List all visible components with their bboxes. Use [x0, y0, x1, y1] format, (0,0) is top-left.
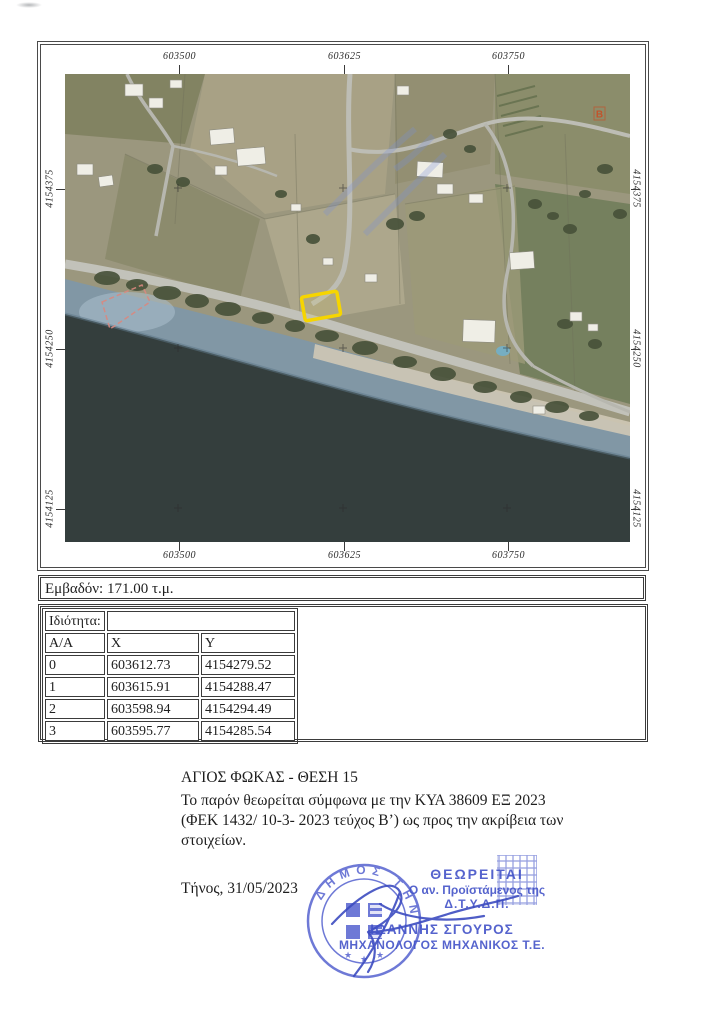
property-row: Ιδιότητα: — [45, 611, 295, 631]
property-label: Ιδιότητα: — [45, 611, 105, 631]
grid-label-top-3: 603750 — [492, 51, 525, 62]
cell-y: 4154279.52 — [201, 655, 295, 675]
col-header-y: Y — [201, 633, 295, 653]
coordinate-table: Ιδιότητα: Α/Α X Y 0 603612.73 4154279.52… — [42, 608, 298, 744]
cell-id: 3 — [45, 721, 105, 741]
parcel-outline — [301, 291, 341, 321]
table-row: 0 603612.73 4154279.52 — [45, 655, 295, 675]
approval-role-1: Ο αν. Προϊστάμενος της — [372, 883, 582, 897]
grid-tick — [179, 65, 180, 74]
cell-y: 4154285.54 — [201, 721, 295, 741]
grid-label-left-3: 4154125 — [45, 486, 56, 532]
scan-artifact — [16, 2, 42, 8]
grid-tick — [631, 349, 640, 350]
col-header-aa: Α/Α — [45, 633, 105, 653]
grid-label-top-1: 603500 — [163, 51, 196, 62]
grid-label-bottom-1: 603500 — [163, 550, 196, 561]
grid-label-bottom-3: 603750 — [492, 550, 525, 561]
grid-tick — [344, 542, 345, 551]
approval-word: ΘΕΩΡΕΙΤΑΙ — [372, 866, 582, 882]
approval-role-2: Δ.Τ.Υ.Δ.Π. — [372, 897, 582, 911]
cell-y: 4154294.49 — [201, 699, 295, 719]
table-row: 2 603598.94 4154294.49 — [45, 699, 295, 719]
location-title: ΑΓΙΟΣ ΦΩΚΑΣ - ΘΕΣΗ 15 — [181, 768, 611, 788]
grid-label-left-2: 4154250 — [45, 326, 56, 372]
cell-x: 603612.73 — [107, 655, 199, 675]
cell-id: 0 — [45, 655, 105, 675]
col-header-x: X — [107, 633, 199, 653]
area-label: Εμβαδόν: 171.00 τ.μ. — [45, 581, 174, 597]
aerial-map-canvas: B — [65, 74, 630, 542]
grid-tick — [631, 189, 640, 190]
signer-name: ΙΩΑΝΝΗΣ ΣΓΟΥΡΟΣ — [322, 922, 562, 937]
grid-label-top-2: 603625 — [328, 51, 361, 62]
header-row: Α/Α X Y — [45, 633, 295, 653]
legal-line-2: (ΦΕΚ 1432/ 10-3- 2023 τεύχος Β’) ως προς… — [181, 811, 611, 831]
table-row: 1 603615.91 4154288.47 — [45, 677, 295, 697]
cell-id: 2 — [45, 699, 105, 719]
table-row: 3 603595.77 4154285.54 — [45, 721, 295, 741]
grid-tick — [56, 349, 65, 350]
coordinate-table-box: Ιδιότητα: Α/Α X Y 0 603612.73 4154279.52… — [40, 606, 646, 740]
approval-stamp: ΘΕΩΡΕΙΤΑΙ Ο αν. Προϊστάμενος της Δ.Τ.Υ.Δ… — [372, 866, 582, 911]
property-value — [107, 611, 295, 631]
grid-tick — [56, 509, 65, 510]
map-frame: 603500 603625 603750 603500 603625 60375… — [40, 44, 646, 568]
cell-y: 4154288.47 — [201, 677, 295, 697]
grid-tick — [508, 542, 509, 551]
cell-x: 603598.94 — [107, 699, 199, 719]
cell-x: 603595.77 — [107, 721, 199, 741]
cell-x: 603615.91 — [107, 677, 199, 697]
grid-label-bottom-2: 603625 — [328, 550, 361, 561]
grid-tick — [179, 542, 180, 551]
aerial-map: B — [65, 74, 630, 542]
grid-tick — [344, 65, 345, 74]
svg-text:★: ★ — [360, 954, 368, 964]
grid-tick — [631, 509, 640, 510]
area-bar: Εμβαδόν: 171.00 τ.μ. — [40, 577, 644, 599]
grid-label-left-1: 4154375 — [45, 166, 56, 212]
seal-stars: ★★★ — [344, 950, 384, 964]
signer-title: ΜΗΧΑΝΟΛΟΓΟΣ ΜΗΧΑΝΙΚΟΣ Τ.Ε. — [322, 938, 562, 952]
signer-block: ΙΩΑΝΝΗΣ ΣΓΟΥΡΟΣ ΜΗΧΑΝΟΛΟΓΟΣ ΜΗΧΑΝΙΚΟΣ Τ.… — [322, 922, 562, 952]
svg-text:B: B — [596, 110, 603, 121]
grid-tick — [56, 189, 65, 190]
cell-id: 1 — [45, 677, 105, 697]
grid-tick — [508, 65, 509, 74]
legal-line-1: Το παρόν θεωρείται σύμφωνα με την ΚΥΑ 38… — [181, 791, 611, 811]
scanned-survey-document: { "map": { "x_labels": ["603500", "60362… — [0, 0, 724, 1024]
